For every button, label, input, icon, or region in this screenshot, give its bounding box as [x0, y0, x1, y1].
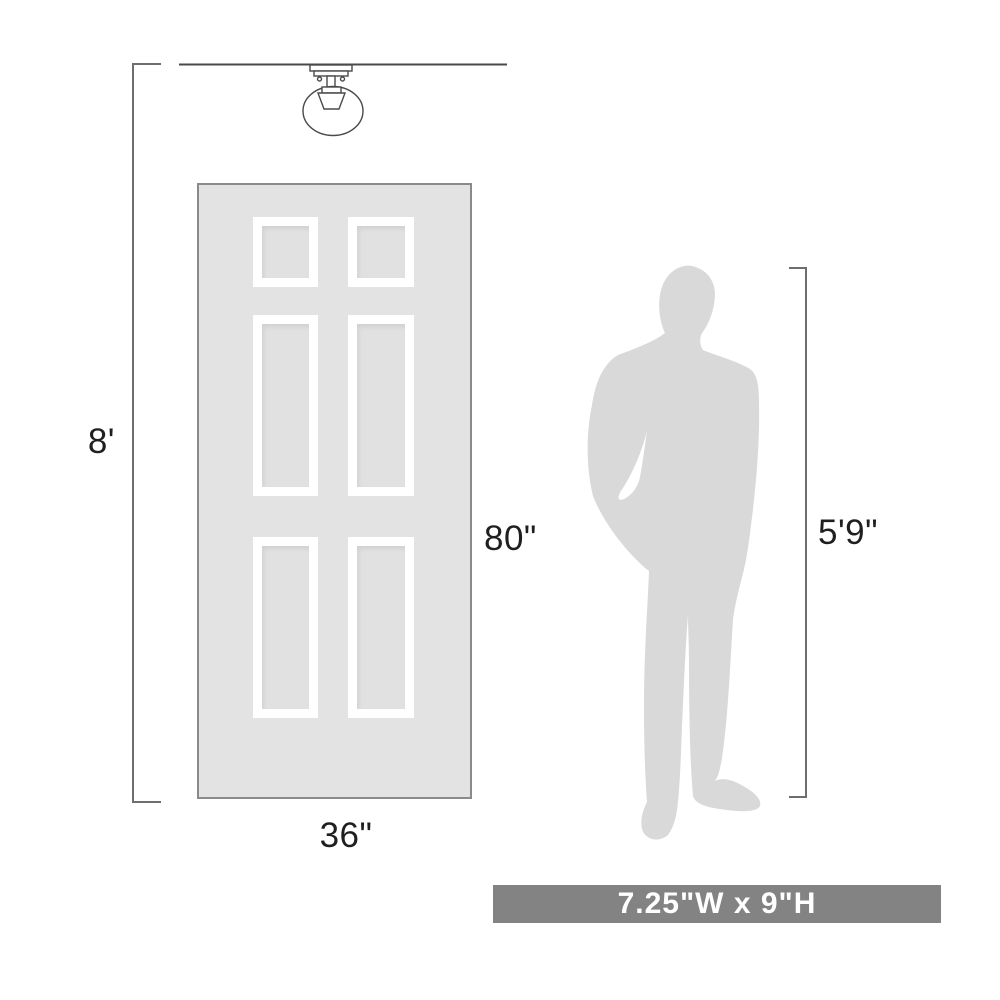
- ceiling-light-icon: [303, 65, 363, 136]
- door-height-label: 80": [484, 521, 537, 556]
- dimension-diagram: 8' 80" 36" 5'9" 7.25"W x 9"H: [0, 0, 1000, 1000]
- door-width-label: 36": [296, 818, 396, 853]
- fixture-size-banner: 7.25"W x 9"H: [493, 885, 941, 923]
- person-height-bracket: [789, 267, 806, 798]
- door-panel: [253, 217, 318, 287]
- fixture-screw-left: [318, 77, 322, 81]
- fixture-size-label: 7.25"W x 9"H: [618, 887, 817, 921]
- diagram-artwork: [0, 0, 1000, 1000]
- fixture-collar: [322, 87, 341, 93]
- door-panel: [253, 315, 318, 496]
- door-panel: [348, 315, 414, 496]
- ceiling-height-bracket: [133, 63, 161, 803]
- fixture-canopy: [310, 65, 352, 71]
- ceiling-height-label: 8': [55, 424, 115, 459]
- door-panel: [253, 537, 318, 718]
- door-panel: [348, 537, 414, 718]
- man-silhouette: [588, 266, 761, 840]
- door-panel: [348, 217, 414, 287]
- fixture-screw-right: [341, 77, 345, 81]
- door-graphic: [197, 183, 472, 799]
- person-height-label: 5'9": [818, 515, 878, 550]
